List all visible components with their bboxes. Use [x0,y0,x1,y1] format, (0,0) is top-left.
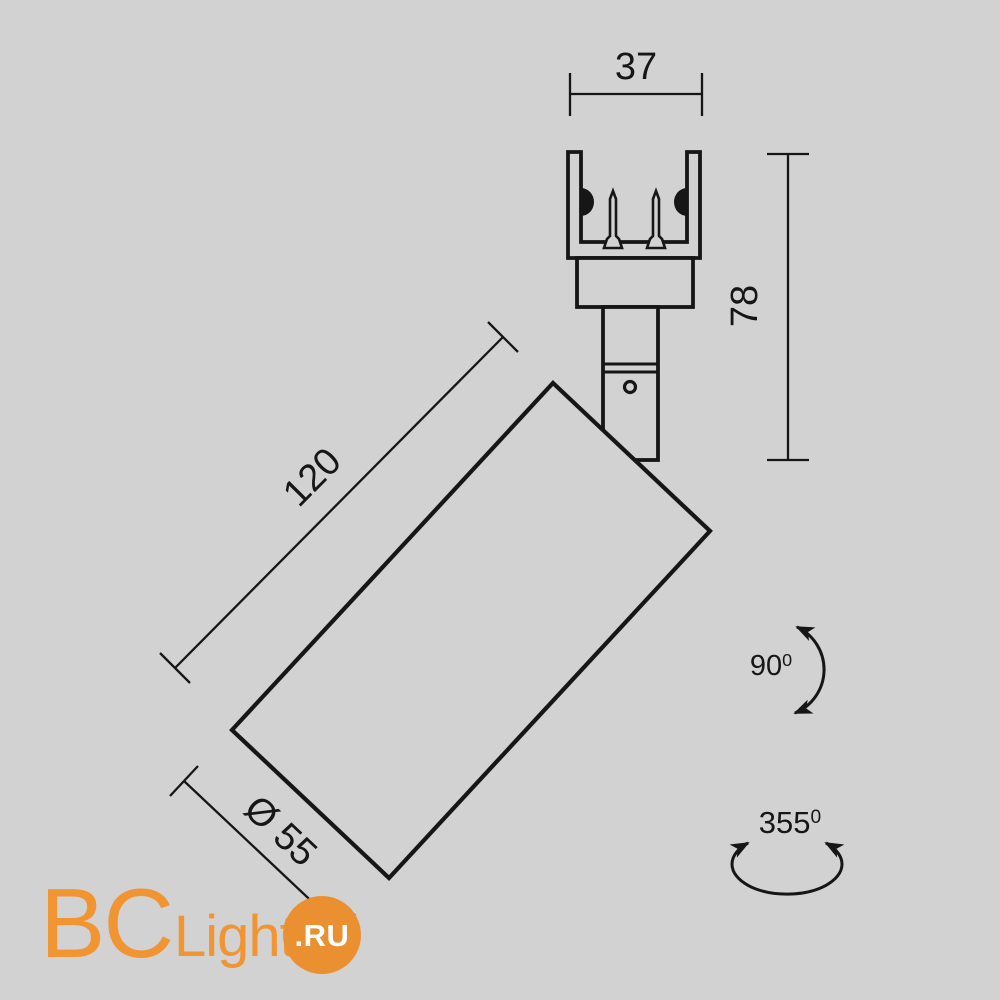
right-latch-tab [674,188,687,216]
stem-screw [625,382,636,393]
contact-pin [604,191,622,248]
rotation-arc-arrow [732,843,842,894]
dimension-track-width: 37 [570,46,702,116]
tilt-angle-indicator: 900 [750,627,824,713]
contact-pin [647,191,665,248]
dimension-mount-height: 78 [724,154,809,460]
dim-label-mount-height: 78 [724,285,766,327]
rotation-angle-label: 3550 [759,805,821,840]
left-latch-tab [581,188,594,216]
rotation-angle-indicator: 3550 [732,805,842,894]
tilt-angle-label: 900 [750,650,792,682]
track-adapter [568,152,700,307]
adapter-base-box [577,258,693,307]
tilt-arc-arrow [795,627,824,713]
dim-label-track-width: 37 [615,46,657,88]
dimension-drawing: 37 78 120 Ø 55 90 [0,0,1000,1000]
